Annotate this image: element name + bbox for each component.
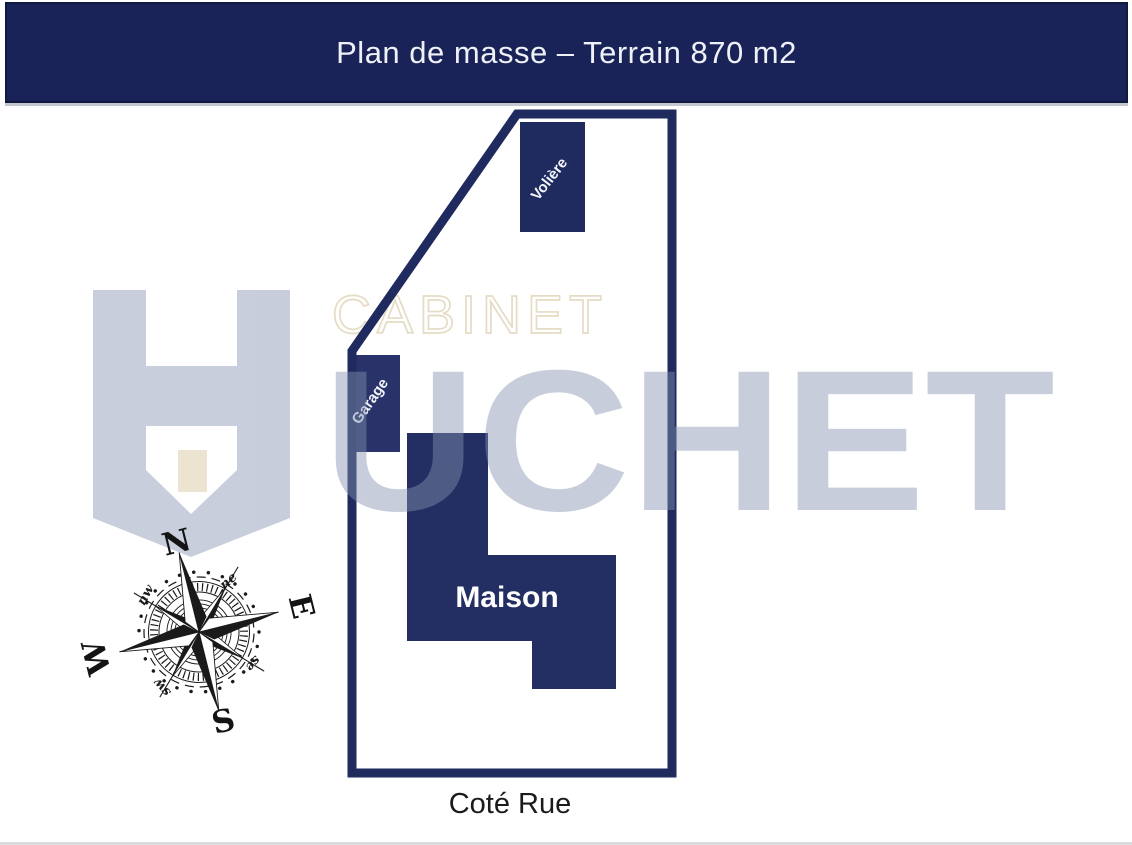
compass-northeast-label: ne (217, 570, 240, 593)
compass-east-label: E (281, 591, 322, 623)
compass-northwest-label: nw (134, 582, 157, 608)
compass-rose-icon: N E S W ne nw se sw (0, 0, 1132, 845)
compass-north-label: N (159, 522, 195, 564)
compass-west-label: W (75, 635, 119, 680)
slide-canvas: Plan de masse – Terrain 870 m2 CABINET M… (0, 0, 1132, 845)
compass-southeast-label: se (242, 653, 264, 675)
compass-cardinal-needles (100, 533, 299, 732)
compass-south-label: S (208, 702, 238, 742)
